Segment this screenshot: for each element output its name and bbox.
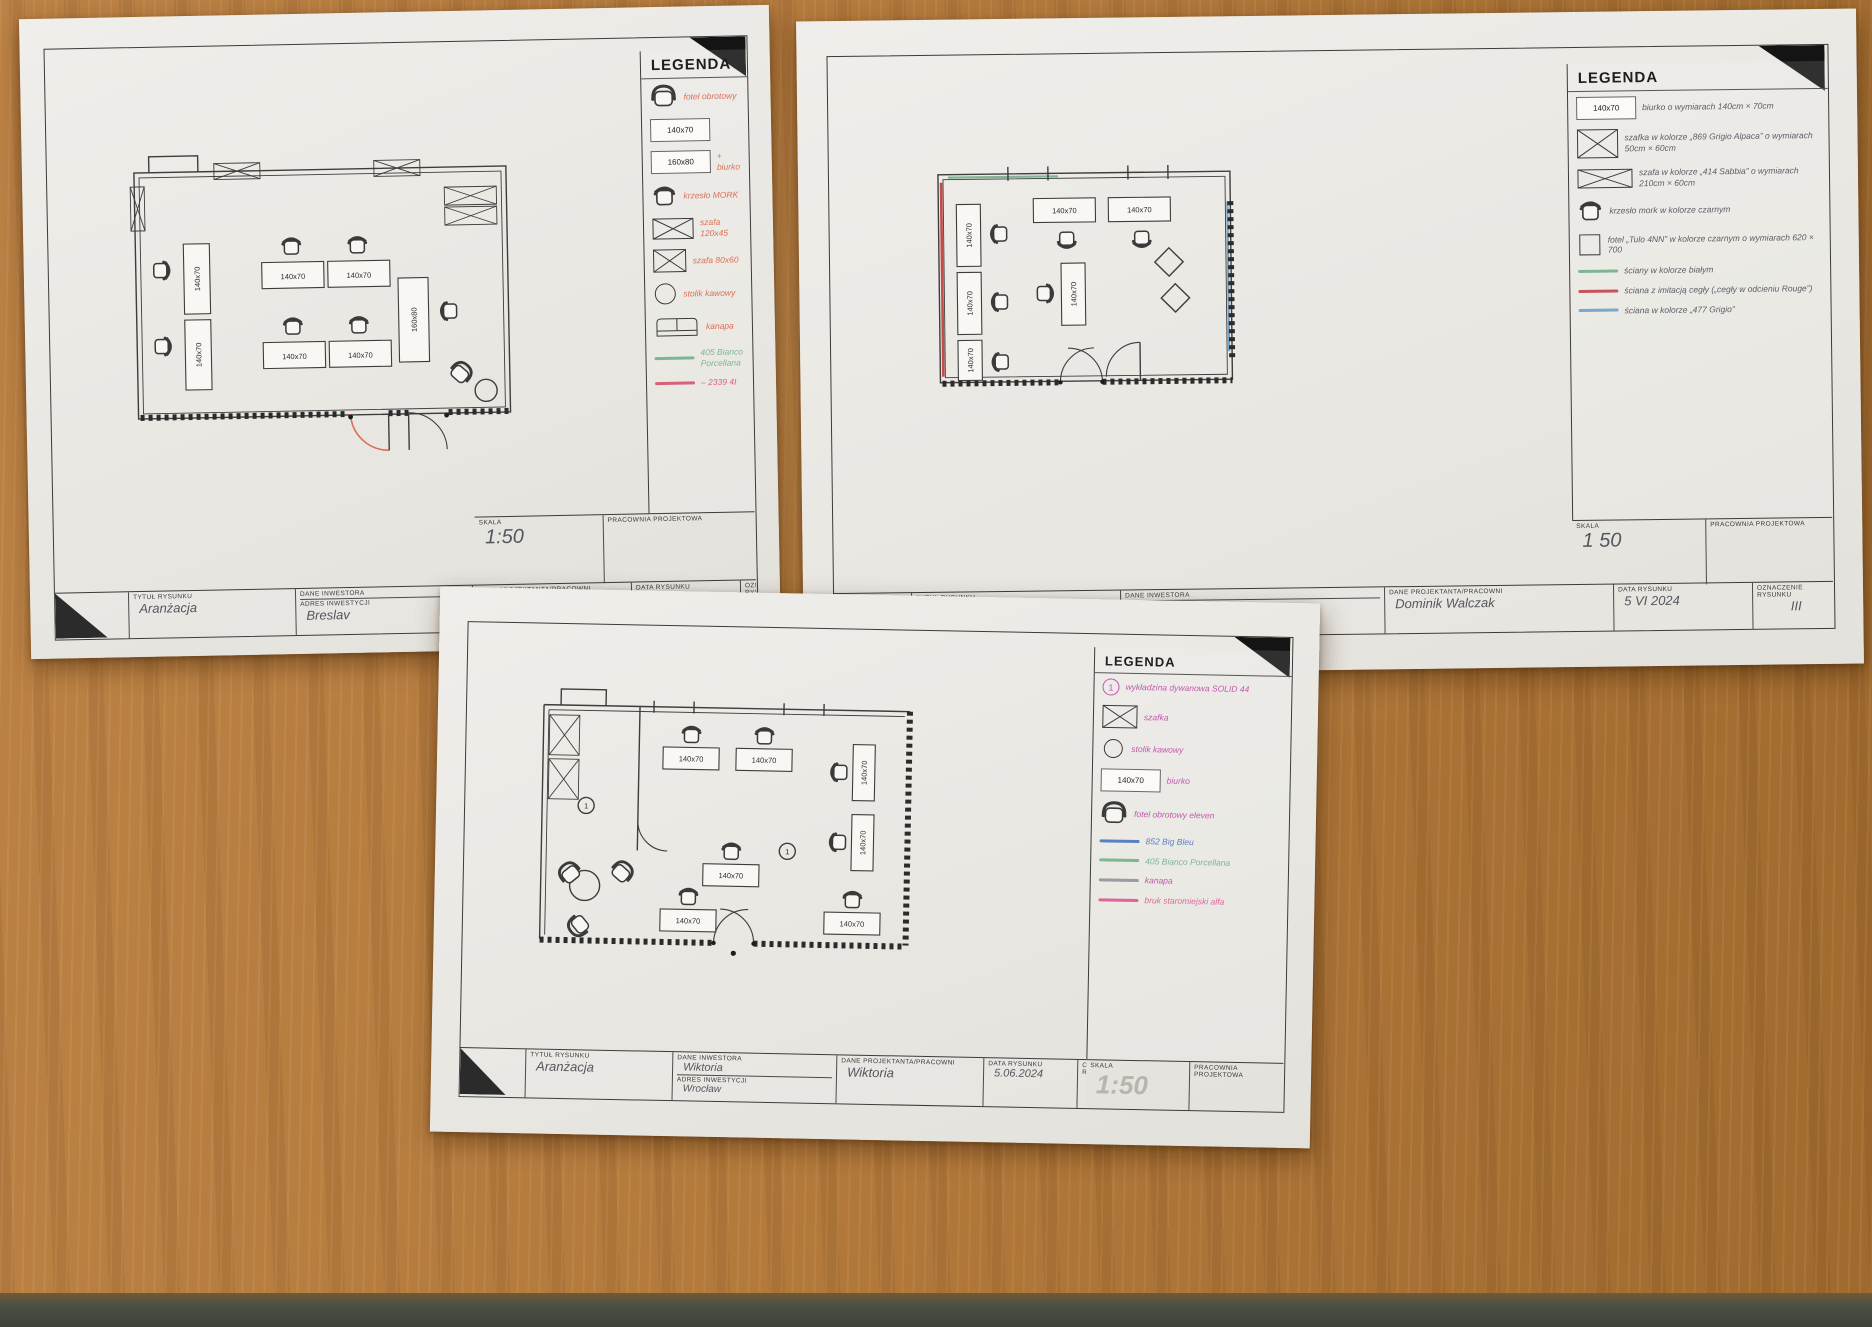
legend-item: ściana w kolorze „477 Grigio”: [1571, 297, 1831, 320]
titleblock-cell-inwestor: DANE INWESTORA Wiktoria ADRES INWESTYCJI…: [671, 1052, 836, 1103]
corner-spacer: [54, 592, 129, 639]
doors: [1058, 342, 1141, 384]
legend-item-label: krzesło mork w kolorze czarnym: [1609, 204, 1730, 216]
desk-label: 140x70: [1052, 206, 1077, 215]
color-line-swatch: [1100, 839, 1140, 843]
legend-item-label: fotel „Tulo 4NN” w kolorze czarnym o wym…: [1608, 232, 1826, 256]
legend-item-label: ściany w kolorze białym: [1624, 265, 1713, 277]
crossed-box-icon: [652, 217, 694, 240]
pracownia-cell: PRACOWNIA PROJEKTOWA: [1188, 1062, 1283, 1112]
desk-label: 140x70: [840, 919, 865, 928]
data-value: 5.06.2024: [988, 1067, 1073, 1081]
desk-label: 140x70: [281, 272, 306, 281]
legend-item: – 2339 4I: [647, 371, 753, 393]
desk-label: 140x70: [676, 916, 701, 925]
titleblock-cell-projektant: DANE PROJEKTANTA/PRACOWNI Wiktoria: [835, 1055, 983, 1106]
desk-label: 140x70: [194, 342, 203, 367]
hatched-wall-boxes: [548, 715, 580, 800]
desks: 140x70 140x70 140x70 140x70 140x70 140x7…: [183, 239, 430, 390]
color-line-swatch: [1578, 270, 1618, 273]
titleblock-cell-oznaczenie: OZNACZENIE RYSUNKU rys nr 3: [1076, 1060, 1086, 1108]
pracownia-label: PRACOWNIA PROJEKTOWA: [1710, 520, 1828, 528]
desk-label: 140x70: [679, 754, 704, 763]
chair-top-icon: [651, 183, 677, 209]
desk-label: 140x70: [348, 351, 373, 360]
data-value: 5 VI 2024: [1618, 592, 1748, 609]
desk-label: 140x70: [1127, 205, 1152, 214]
legend-item-label: biurko: [1167, 776, 1190, 787]
color-line-swatch: [1098, 898, 1138, 902]
crossed-box-wide-icon: [1577, 168, 1633, 189]
legend-item: fotel „Tulo 4NN” w kolorze czarnym o wym…: [1570, 225, 1830, 261]
legend-item-label: stolik kawowy: [1131, 744, 1183, 756]
legend-item-label: 405 Bianco Porcellana: [700, 346, 748, 368]
legend-item: szafa 120x45: [644, 211, 751, 244]
skala-value: 1:50: [479, 524, 599, 549]
legend-item-label: szafa 120x45: [700, 217, 746, 239]
titleblock-cell-data: DATA RYSUNKU 5 VI 2024: [1613, 583, 1753, 631]
legend-item-label: ściana z imitacją cegły („cegły w odcien…: [1624, 283, 1812, 296]
legend-item: stolik kawowy: [1093, 732, 1291, 767]
desk-label: 140x70: [718, 871, 743, 880]
legend-title: LEGENDA: [641, 49, 748, 79]
table-edge: [0, 1293, 1872, 1327]
legend-item-label: kanapa: [706, 320, 734, 331]
titleblock-cell-tytul: TYTUŁ RYSUNKU Aranżacja: [128, 589, 296, 638]
desk-label: 140x70: [965, 291, 974, 316]
chair-top-icon: [1577, 198, 1603, 224]
scale-row: SKALA 1 50 PRACOWNIA PROJEKTOWA: [1572, 517, 1833, 586]
pracownia-label: PRACOWNIA PROJEKTOWA: [608, 514, 751, 524]
crossed-box-icon: [1102, 704, 1138, 729]
legend-item: 140x70 biurko o wymiarach 140cm × 70cm: [1568, 89, 1828, 124]
legend-item-label: kanapa: [1145, 875, 1173, 886]
green-wall-line: [948, 176, 1058, 177]
armchair-top-icon: [649, 84, 677, 111]
desk-label: 140x70: [752, 756, 777, 765]
skala-value: 1 50: [1576, 528, 1701, 553]
legend-item: szafa w kolorze „414 Sabbia” o wymiarach…: [1569, 160, 1829, 193]
scale-row: SKALA 1:50 PRACOWNIA PROJEKTOWA: [1085, 1059, 1283, 1112]
legend-item-label: szafa 80x60: [693, 254, 739, 266]
legend-item-label: fotel obrotowy: [683, 90, 736, 102]
color-line-swatch: [1579, 309, 1619, 312]
pracownia-cell: PRACOWNIA PROJEKTOWA: [1705, 518, 1833, 585]
tytul-value: Aranżacja: [133, 598, 291, 616]
desk-label: 140x70: [965, 223, 974, 248]
square-armchair-icon: [1578, 233, 1602, 257]
legend-item: kanapa: [646, 308, 753, 343]
sofa-icon: [654, 314, 700, 339]
legend-item-label: 852 Big Bleu: [1145, 836, 1193, 848]
legend-item: stolik kawowy: [645, 275, 752, 310]
drawing-sheet-1: 140x70 140x70 140x70 140x70 140x70 140x7…: [19, 5, 781, 659]
color-line-swatch: [1099, 859, 1139, 863]
color-line-swatch: [655, 381, 695, 385]
desk-label: 140x70: [193, 266, 202, 291]
legend-item: 160x80 + biurko: [642, 144, 749, 178]
diamond-tables: [1155, 248, 1190, 313]
legend-panel: LEGENDA fotel obrotowy 140x70 160x80 + b…: [640, 49, 756, 513]
legend-item: 140x70: [642, 112, 749, 146]
projektant-value: Wiktoria: [841, 1064, 979, 1082]
desk-size-box: 140x70: [650, 118, 710, 142]
color-line-swatch: [1099, 878, 1139, 882]
legend-panel: LEGENDA 1 wykładzina dywanowa SOLID 44 s…: [1086, 647, 1292, 1063]
scale-row: SKALA 1:50 PRACOWNIA PROJEKTOWA: [475, 511, 756, 585]
legend-item-label: szafka: [1144, 712, 1169, 723]
legend-item: krzesło mork w kolorze czarnym: [1569, 190, 1829, 228]
legend-item-label: stolik kawowy: [683, 287, 735, 299]
color-line-swatch: [1578, 289, 1618, 292]
legend-item-label: szafka w kolorze „869 Grigio Alpaca” o w…: [1624, 130, 1824, 154]
sheet3-floor-plan: 1 1 140x70 140x70 140x70 140x70 140x70 1…: [459, 621, 1095, 1107]
desk-label: 160x80: [410, 307, 419, 332]
legend-panel: LEGENDA 140x70 biurko o wymiarach 140cm …: [1567, 61, 1834, 520]
legend-item: fotel obrotowy: [641, 77, 748, 114]
skala-cell: SKALA 1:50: [475, 515, 604, 585]
titleblock-cell-projektant: DANE PROJEKTANTA/PRACOWNI Dominik Walcza…: [1384, 585, 1614, 634]
armchair-top-icon: [1100, 800, 1128, 827]
tytul-value: Aranżacja: [530, 1058, 668, 1076]
titleblock-cell-oznaczenie: OZNACZENIE RYSUNKU III: [1752, 582, 1834, 629]
legend-item: szafa 80x60: [644, 242, 751, 277]
legend-item-label: bruk staromiejski alfa: [1144, 895, 1224, 907]
desk-label: 140x70: [860, 760, 869, 785]
titleblock-cell-data: DATA RYSUNKU 5.06.2024: [982, 1058, 1077, 1108]
skala-cell: SKALA 1:50: [1085, 1060, 1189, 1110]
desk-label: 140x70: [966, 348, 975, 373]
desk-size-box: 160x80: [651, 150, 711, 174]
legend-title: LEGENDA: [1095, 647, 1292, 677]
lounge-area: [553, 856, 637, 942]
legend-item: bruk staromiejski alfa: [1090, 889, 1287, 912]
legend-item-note: + biurko: [717, 150, 745, 172]
titleblock-cell-tytul: TYTUŁ RYSUNKU Aranżacja: [525, 1049, 673, 1100]
adres-value: Wrocław: [677, 1083, 832, 1097]
circled-number-icon: 1: [1102, 678, 1119, 695]
legend-item-label: krzesło MORK: [683, 189, 738, 201]
circle-table-icon: [653, 282, 677, 306]
sheet1-floor-plan: 140x70 140x70 140x70 140x70 140x70 140x7…: [43, 37, 649, 592]
desk-size-box: 140x70: [1576, 96, 1636, 120]
coffee-table: [475, 379, 497, 401]
desk-label: 140x70: [282, 352, 307, 361]
circle-table-icon: [1101, 737, 1125, 759]
sheet2-floor-plan: 140x70 140x70 140x70 140x70 140x70 140x7…: [826, 47, 1573, 593]
oznaczenie-value: III: [1757, 598, 1829, 614]
floor-marker-number: 1: [785, 847, 789, 856]
legend-item: 405 Bianco Porcellana: [646, 341, 753, 373]
desk-label: 140x70: [858, 830, 867, 855]
oznaczenie-label: OZNACZENIE RYSUNKU: [1757, 584, 1829, 599]
legend-item-label: ściana w kolorze „477 Grigio”: [1625, 304, 1735, 316]
drawing-sheet-3: 1 1 140x70 140x70 140x70 140x70 140x70 1…: [430, 587, 1320, 1149]
legend-item: 1 wykładzina dywanowa SOLID 44: [1094, 673, 1291, 703]
doors: [348, 412, 449, 451]
photo-of-floorplan-sheets: 140x70 140x70 140x70 140x70 140x70 140x7…: [0, 0, 1872, 1327]
skala-cell: SKALA 1 50: [1572, 519, 1706, 586]
crossed-box-icon: [1576, 128, 1618, 159]
legend-item-label: szafa w kolorze „414 Sabbia” o wymiarach…: [1639, 165, 1825, 189]
pracownia-cell: PRACOWNIA PROJEKTOWA: [603, 512, 756, 583]
doors: [635, 820, 758, 956]
legend-item-label: wykładzina dywanowa SOLID 44: [1125, 682, 1249, 695]
desk-size-box: 140x70: [1101, 768, 1161, 792]
floor-markers: 1 1: [577, 797, 796, 859]
crossed-box-icon: [652, 248, 686, 273]
floor-marker-number: 1: [584, 801, 588, 810]
drawing-sheet-2: 140x70 140x70 140x70 140x70 140x70 140x7…: [796, 9, 1864, 677]
projektant-value: Dominik Walczak: [1389, 594, 1609, 612]
bottom-wall: [141, 411, 509, 418]
legend-item: fotel obrotowy eleven: [1092, 795, 1290, 834]
legend-item: szafka w kolorze „869 Grigio Alpaca” o w…: [1568, 121, 1828, 163]
corner-spacer: [459, 1048, 526, 1097]
legend-item-label: biurko o wymiarach 140cm × 70cm: [1642, 101, 1774, 113]
legend-item: szafka: [1094, 699, 1292, 736]
pracownia-label: PRACOWNIA PROJEKTOWA: [1194, 1064, 1279, 1080]
skala-value: 1:50: [1090, 1069, 1186, 1102]
legend-item-label: – 2339 4I: [701, 377, 737, 388]
oznaczenie-value: rys nr 3: [1082, 1076, 1087, 1091]
legend-title: LEGENDA: [1568, 61, 1828, 92]
desk-label: 140x70: [1069, 282, 1078, 307]
desk-label: 140x70: [347, 271, 372, 280]
legend-item-label: fotel obrotowy eleven: [1134, 809, 1215, 821]
legend-item-label: 405 Bianco Porcellana: [1145, 856, 1230, 868]
legend-item: krzesło MORK: [643, 176, 750, 213]
color-line-swatch: [655, 356, 695, 360]
legend-item: 140x70 biurko: [1092, 763, 1290, 799]
